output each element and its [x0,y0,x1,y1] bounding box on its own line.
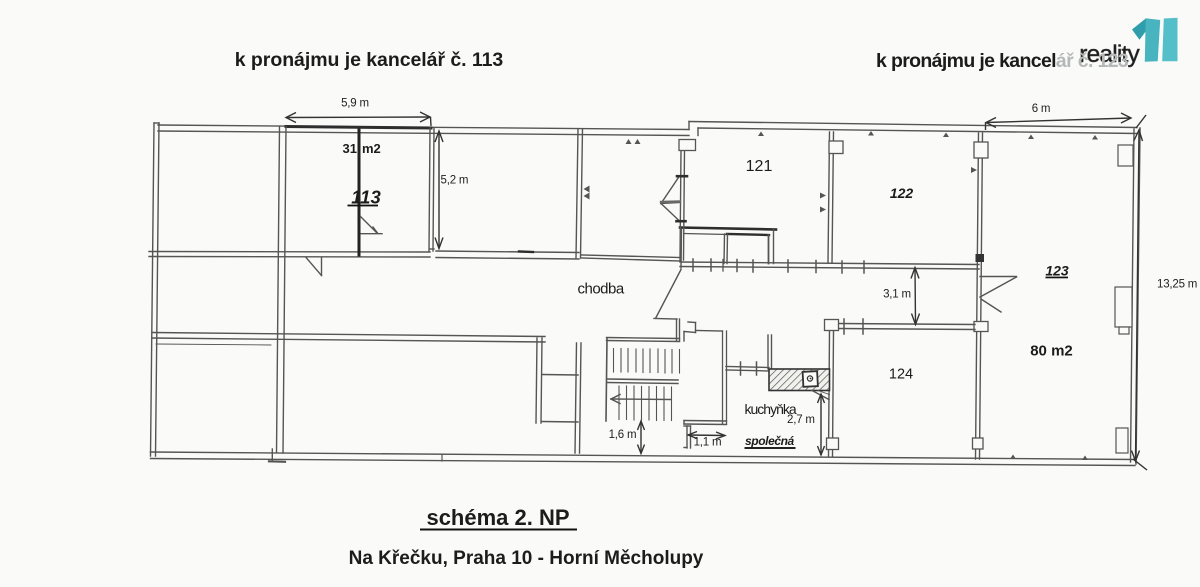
svg-text:společná: společná [745,434,795,448]
svg-text:124: 124 [889,367,913,383]
svg-text:1,1 m: 1,1 m [694,437,722,449]
svg-text:k pronájmu je kancelář č. 123: k pronájmu je kancelář č. 123 [876,50,1129,72]
svg-text:6 m: 6 m [1032,103,1051,115]
svg-text:31: 31 [343,141,357,156]
svg-text:schéma 2. NP: schéma 2. NP [426,505,569,530]
svg-text:5,2 m: 5,2 m [441,175,469,187]
svg-text:13,25 m: 13,25 m [1157,279,1197,291]
svg-text:3,1 m: 3,1 m [883,289,911,301]
svg-text:80 m2: 80 m2 [1030,343,1073,360]
svg-text:122: 122 [890,185,914,201]
svg-text:chodba: chodba [578,281,625,298]
svg-text:m2: m2 [362,141,381,156]
svg-text:Na Křečku, Praha 10 - Horní Mě: Na Křečku, Praha 10 - Horní Měcholupy [349,548,704,569]
svg-text:5,9 m: 5,9 m [341,98,369,110]
svg-text:113: 113 [351,187,381,208]
svg-text:123: 123 [1045,263,1069,279]
svg-text:1,6 m: 1,6 m [609,429,637,441]
svg-text:kuchyňka: kuchyňka [745,401,797,417]
svg-text:121: 121 [746,158,773,175]
svg-text:k pronájmu je kancelář č. 113: k pronájmu je kancelář č. 113 [235,49,504,71]
